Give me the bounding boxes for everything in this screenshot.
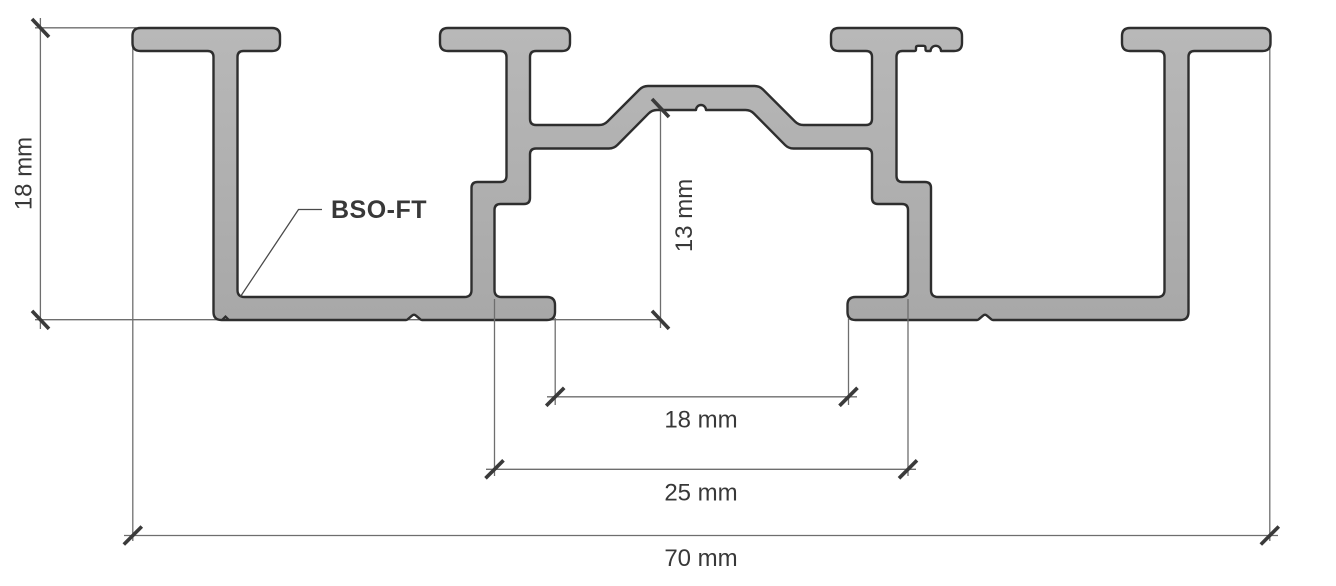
svg-text:25 mm: 25 mm — [664, 480, 737, 507]
svg-text:70 mm: 70 mm — [664, 545, 737, 572]
svg-text:13 mm: 13 mm — [671, 179, 698, 252]
svg-text:BSO-FT: BSO-FT — [331, 196, 427, 224]
svg-text:18 mm: 18 mm — [664, 407, 737, 434]
svg-text:18 mm: 18 mm — [11, 137, 38, 210]
